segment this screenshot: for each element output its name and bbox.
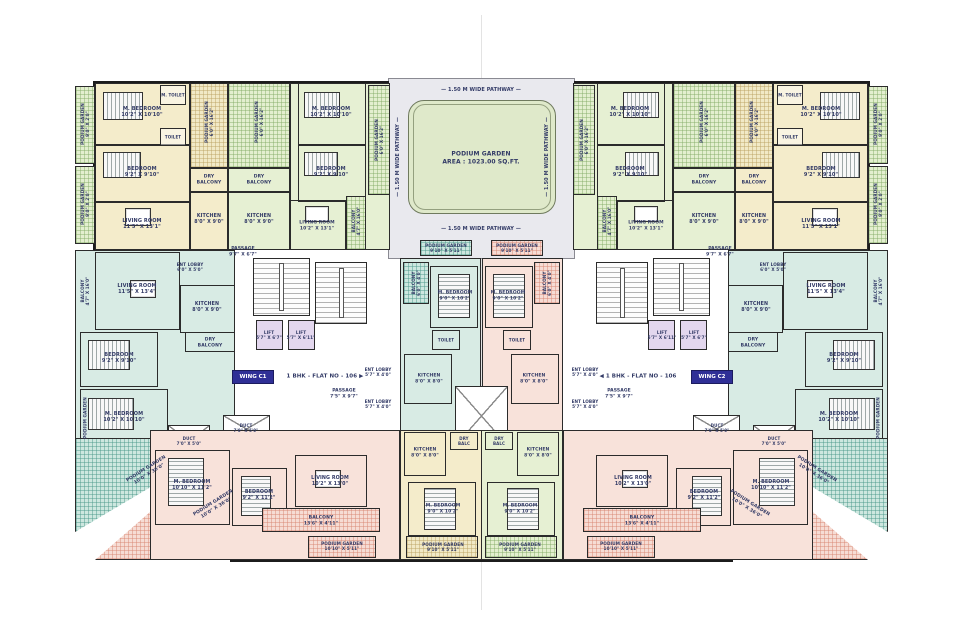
floor-plan-canvas: WING C1 WING C2 — 1.50 M WIDE PATHWAY ——… <box>0 0 957 625</box>
podium-strip-pink-bottomleft <box>308 536 376 558</box>
bed-icon <box>103 92 143 120</box>
room-toilet <box>432 330 460 350</box>
room-kitchen <box>404 354 452 404</box>
room-dry-balcony <box>185 332 235 352</box>
balcony-strip-green-left <box>346 196 366 250</box>
floor-plan: WING C1 WING C2 — 1.50 M WIDE PATHWAY ——… <box>0 0 957 625</box>
dry-balcony-cream-right <box>735 168 773 192</box>
dining-table-icon <box>622 470 648 488</box>
bed-icon <box>759 458 795 506</box>
label-entlobby-l3: ENT LOBBY 5'7" X 4'0" <box>365 399 392 410</box>
podium-band-green-right <box>673 83 735 168</box>
room-kitchen <box>404 432 446 476</box>
staircase <box>653 258 710 316</box>
room-dry-balcony <box>485 432 513 450</box>
podium-strip-under-court-right <box>491 240 543 256</box>
podium-band-cream-left <box>190 83 228 168</box>
kitchen-cream-right <box>735 192 773 250</box>
bed-icon <box>829 398 875 430</box>
balcony-strip-teal-center <box>403 262 429 304</box>
bed-icon <box>168 458 204 506</box>
room-mtoilet <box>777 85 803 105</box>
lift <box>256 320 283 350</box>
label-entlobby-l2: ENT LOBBY 5'7" X 4'0" <box>365 367 392 378</box>
lift <box>648 320 675 350</box>
balcony-strip-pink-center <box>534 262 560 304</box>
room-toilet <box>503 330 531 350</box>
podium-strip-pink-bottomright <box>587 536 655 558</box>
wing-c1-badge: WING C1 <box>232 370 274 384</box>
label-entlobby-r3: ENT LOBBY 5'7" X 4'0" <box>572 399 599 410</box>
room-toilet <box>160 128 186 146</box>
podium-strip-court-left <box>368 85 390 195</box>
balcony-strip-pink-bottomright <box>583 508 701 532</box>
podium-strip-right-2 <box>868 166 888 244</box>
bed-icon <box>88 340 130 370</box>
room-kitchen <box>511 354 559 404</box>
room-dry-balcony <box>450 432 478 450</box>
dry-balcony-green-left <box>228 168 290 192</box>
dining-table-icon <box>634 206 658 222</box>
dry-balcony-green-right <box>673 168 735 192</box>
dining-table-icon <box>125 208 151 226</box>
dining-table-icon <box>315 470 341 488</box>
bed-icon <box>822 152 860 178</box>
podium-strip-right-1 <box>868 86 888 164</box>
bed-icon <box>438 274 470 318</box>
label-passage-c2: PASSAGE 7'5" X 9'7" <box>605 388 633 399</box>
staircase <box>315 262 367 324</box>
label-flat-c2: ◀ 1 BHK - FLAT NO - 106 <box>591 374 686 381</box>
bed-icon <box>833 340 875 370</box>
podium-strip-left-2 <box>75 166 95 244</box>
staircase <box>253 258 310 316</box>
dining-table-icon <box>807 280 833 298</box>
room-toilet <box>777 128 803 146</box>
lift <box>288 320 315 350</box>
podium-band-cream-right <box>735 83 773 168</box>
wing-c2-badge: WING C2 <box>691 370 733 384</box>
podium-strip-green-bottom <box>485 536 557 558</box>
bed-icon <box>625 152 659 176</box>
room-mtoilet <box>160 85 186 105</box>
dry-balcony-cream-left <box>190 168 228 192</box>
kitchen-green-left <box>228 192 290 250</box>
bed-icon <box>507 488 539 530</box>
room-dry-balcony <box>728 332 778 352</box>
podium-garden-inner-border <box>413 104 551 210</box>
dining-table-icon <box>812 208 838 226</box>
kitchen-green-right <box>673 192 735 250</box>
bed-icon <box>820 92 860 120</box>
bed-icon <box>424 488 456 530</box>
bed-icon <box>88 398 134 430</box>
lift <box>680 320 707 350</box>
dining-table-icon <box>305 206 329 222</box>
balcony-strip-green-right <box>597 196 617 250</box>
bed-icon <box>103 152 141 178</box>
room-kitchen <box>517 432 559 476</box>
bed-icon <box>304 152 338 176</box>
bed-icon <box>493 274 525 318</box>
label-flat-c1: 1 BHK - FLAT NO - 106 ▶ <box>278 374 373 381</box>
staircase <box>596 262 648 324</box>
label-passage-c1: PASSAGE 7'5" X 9'7" <box>330 388 358 399</box>
room-kitchen <box>728 285 783 333</box>
room-kitchen <box>180 285 235 333</box>
bed-icon <box>623 92 659 118</box>
podium-strip-cream-bottom <box>406 536 478 558</box>
kitchen-cream-left <box>190 192 228 250</box>
label-entlobby-r2: ENT LOBBY 5'7" X 4'0" <box>572 367 599 378</box>
podium-strip-court-right <box>573 85 595 195</box>
podium-strip-left-1 <box>75 86 95 164</box>
bed-icon <box>304 92 340 118</box>
podium-band-green-left <box>228 83 290 168</box>
balcony-strip-pink-bottomleft <box>262 508 380 532</box>
podium-strip-under-court-left <box>420 240 472 256</box>
dining-table-icon <box>130 280 156 298</box>
